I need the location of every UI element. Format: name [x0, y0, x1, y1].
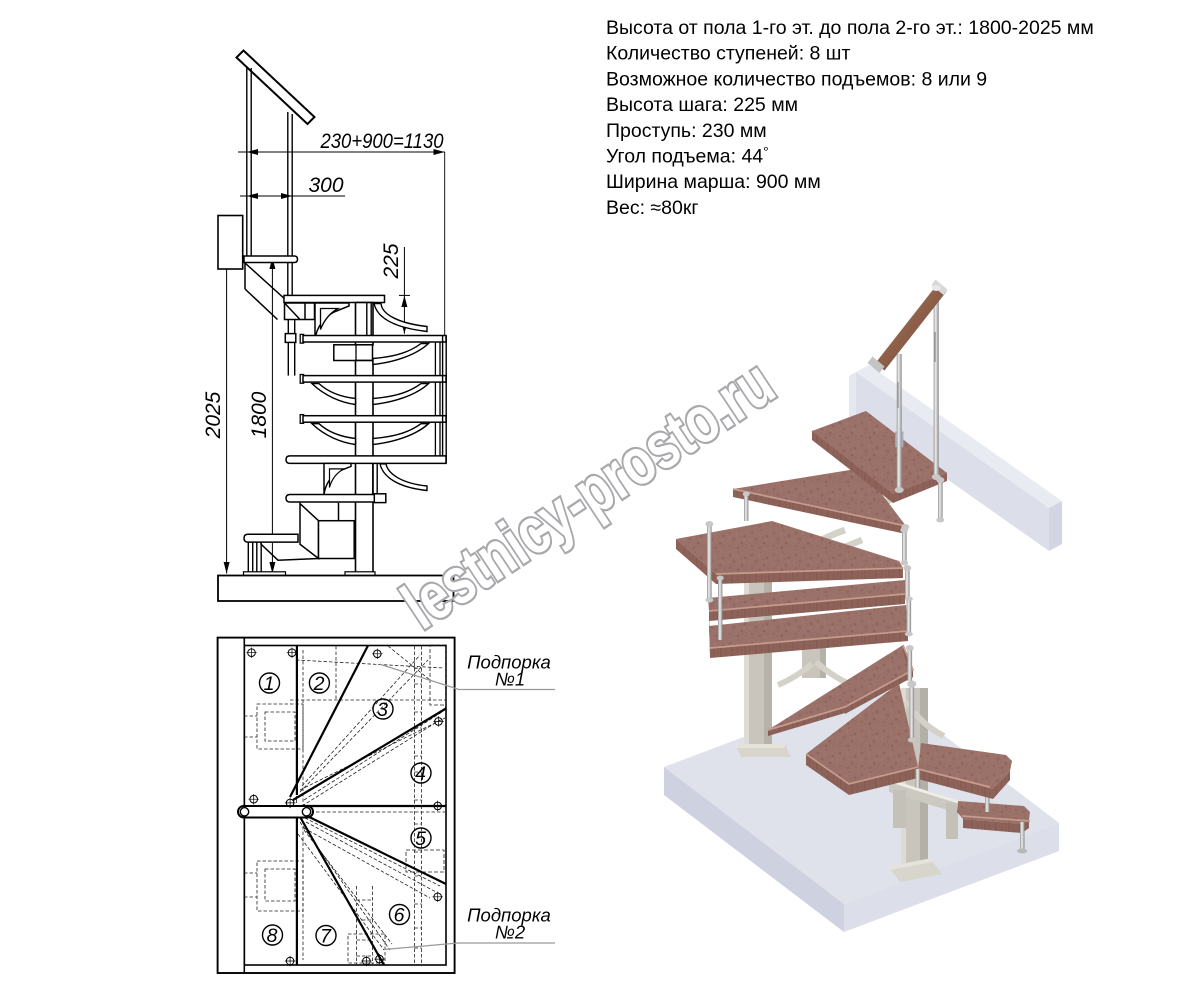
svg-text:300: 300 — [308, 174, 343, 197]
svg-text:7: 7 — [320, 926, 332, 948]
svg-text:225: 225 — [380, 243, 403, 279]
svg-text:Количество ступеней: 8 шт: Количество ступеней: 8 шт — [606, 43, 850, 65]
svg-text:4: 4 — [415, 763, 426, 785]
svg-text:Высота шага: 225 мм: Высота шага: 225 мм — [606, 94, 798, 116]
svg-text:Высота от пола 1-го эт. до пол: Высота от пола 1-го эт. до пола 2-го эт.… — [606, 17, 1094, 39]
svg-text:№1: №1 — [495, 669, 525, 690]
svg-text:Возможное количество подъемов:: Возможное количество подъемов: 8 или 9 — [606, 68, 987, 90]
svg-text:1: 1 — [264, 673, 275, 695]
svg-text:2: 2 — [313, 673, 325, 695]
svg-text:6: 6 — [394, 905, 405, 927]
svg-text:5: 5 — [415, 828, 426, 850]
svg-text:Проступь: 230 мм: Проступь: 230 мм — [606, 120, 767, 142]
svg-text:230+900=1130: 230+900=1130 — [320, 130, 444, 153]
svg-text:2025: 2025 — [202, 391, 225, 439]
svg-text:Ширина марша: 900 мм: Ширина марша: 900 мм — [606, 171, 821, 193]
svg-text:Вес: ≈80кг: Вес: ≈80кг — [606, 197, 698, 219]
svg-text:8: 8 — [267, 925, 278, 947]
svg-text:№2: №2 — [495, 922, 526, 943]
svg-text:3: 3 — [377, 699, 388, 721]
svg-text:Угол подъема: 44°: Угол подъема: 44° — [606, 144, 769, 168]
svg-text:1800: 1800 — [248, 391, 271, 438]
